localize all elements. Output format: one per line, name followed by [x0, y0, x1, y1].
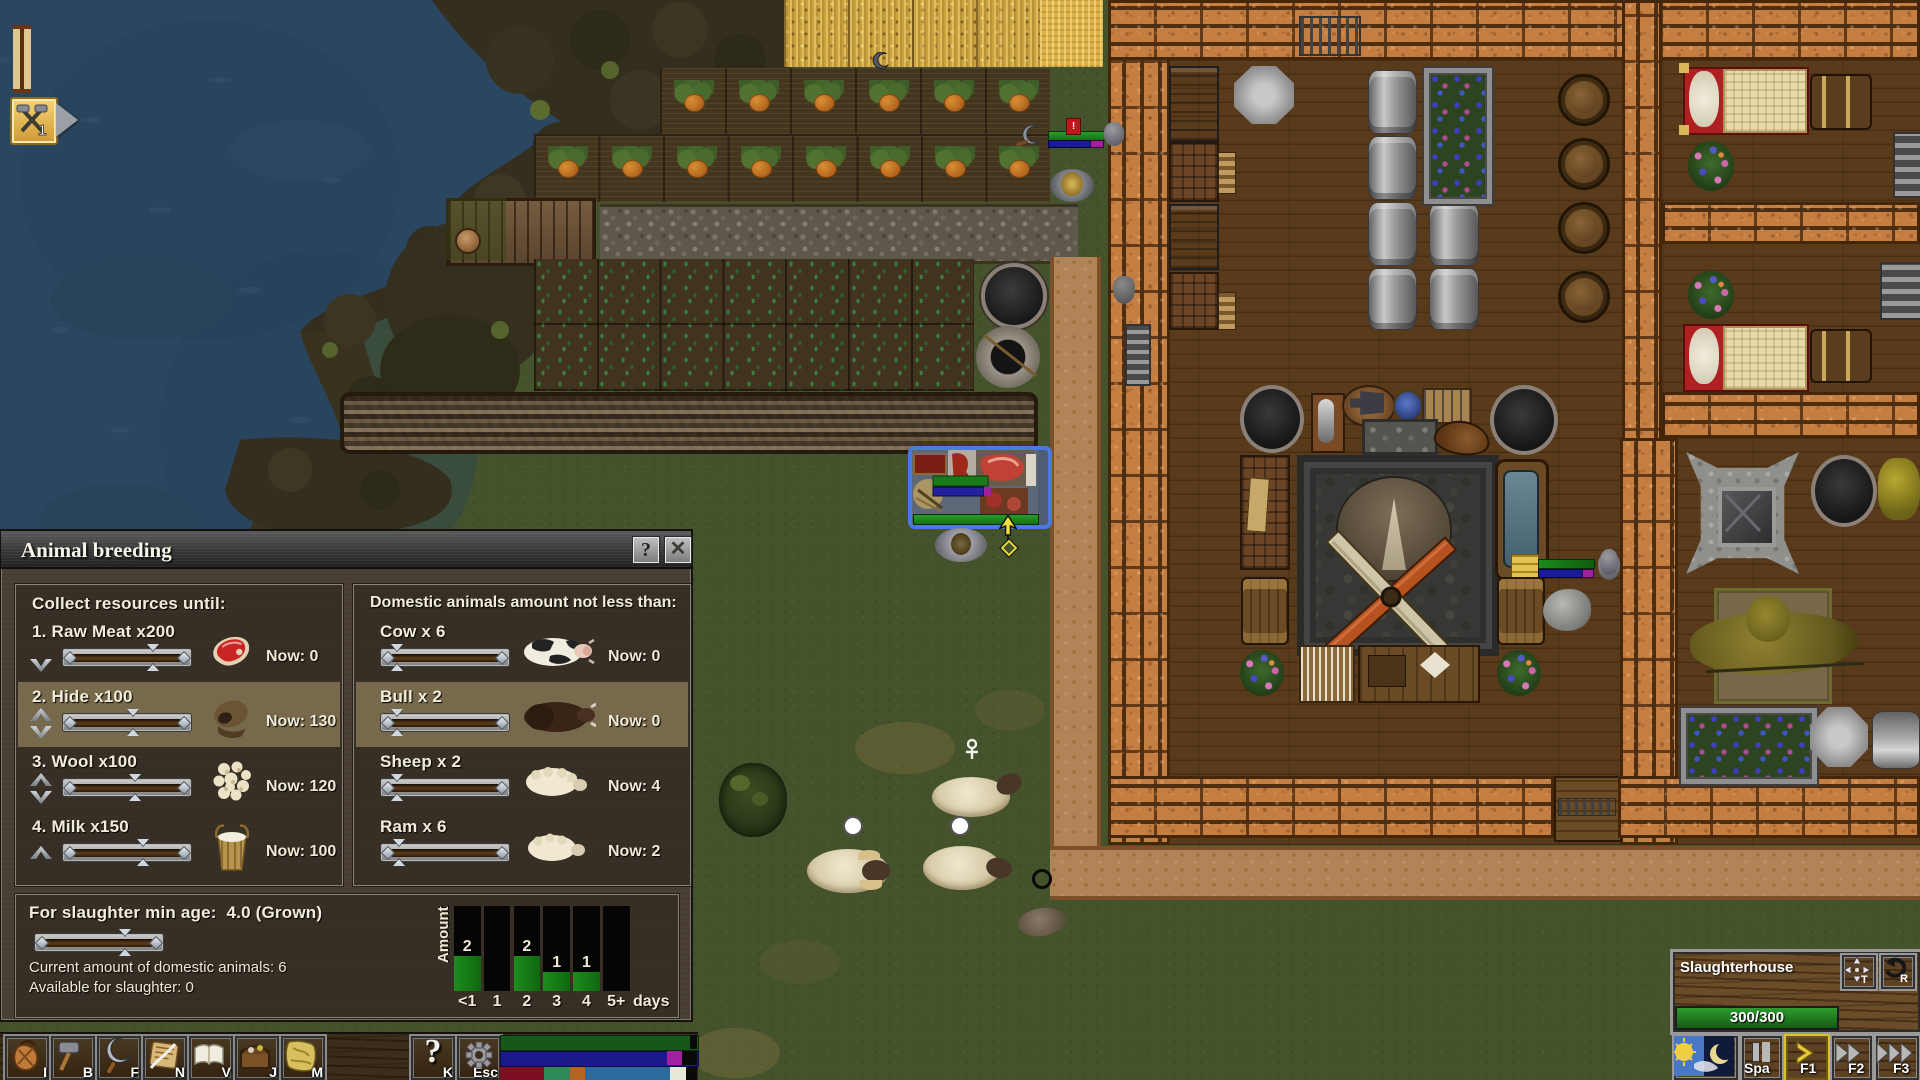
svg-text:T: T [1861, 974, 1868, 984]
svg-text:1: 1 [38, 122, 46, 137]
svg-text:R: R [1900, 973, 1908, 984]
